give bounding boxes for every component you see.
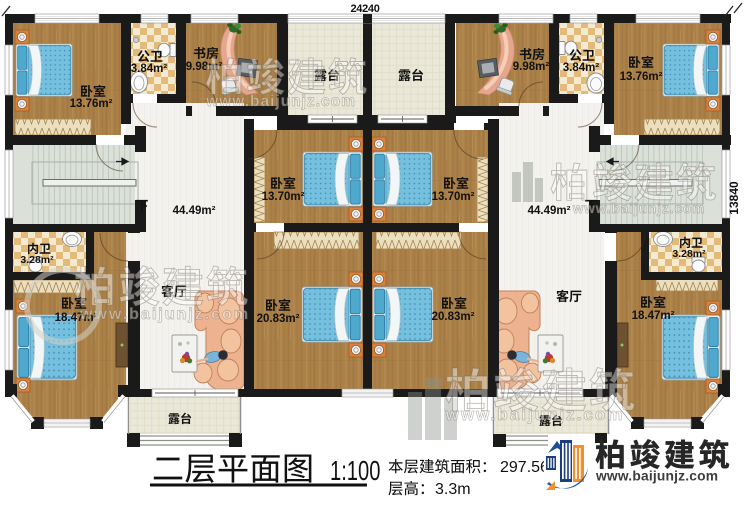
svg-text:13840: 13840 — [727, 181, 741, 215]
svg-text:13.70m²: 13.70m² — [432, 191, 475, 203]
svg-text:18.47m²: 18.47m² — [632, 310, 675, 322]
svg-text:1:100: 1:100 — [330, 456, 380, 487]
svg-text:3.28m²: 3.28m² — [20, 254, 54, 266]
svg-text:3.3m: 3.3m — [435, 481, 471, 498]
svg-text:20.83m²: 20.83m² — [257, 313, 300, 325]
svg-text:297.56: 297.56 — [500, 459, 549, 476]
svg-text:13.76m²: 13.76m² — [620, 71, 663, 83]
svg-text:www.baijunjz.com: www.baijunjz.com — [445, 405, 625, 424]
svg-text:www.baijunjz.com: www.baijunjz.com — [205, 93, 356, 110]
svg-text:www.baijunjz.com: www.baijunjz.com — [595, 469, 718, 484]
svg-text:9.98m²: 9.98m² — [513, 61, 550, 73]
svg-text:44.49m²: 44.49m² — [173, 205, 216, 217]
svg-text:13.76m²: 13.76m² — [70, 98, 113, 110]
svg-text:3.84m²: 3.84m² — [131, 63, 168, 75]
svg-text:44.49m²: 44.49m² — [528, 205, 571, 217]
svg-text:www.baijunjz.com: www.baijunjz.com — [79, 306, 250, 323]
svg-text:www.baijunjz.com: www.baijunjz.com — [572, 201, 706, 216]
svg-text:13.70m²: 13.70m² — [262, 191, 305, 203]
svg-text:3.28m²: 3.28m² — [672, 248, 706, 260]
svg-text:3.84m²: 3.84m² — [563, 62, 600, 74]
svg-text:20.83m²: 20.83m² — [432, 311, 475, 323]
svg-text:24240: 24240 — [350, 3, 379, 15]
